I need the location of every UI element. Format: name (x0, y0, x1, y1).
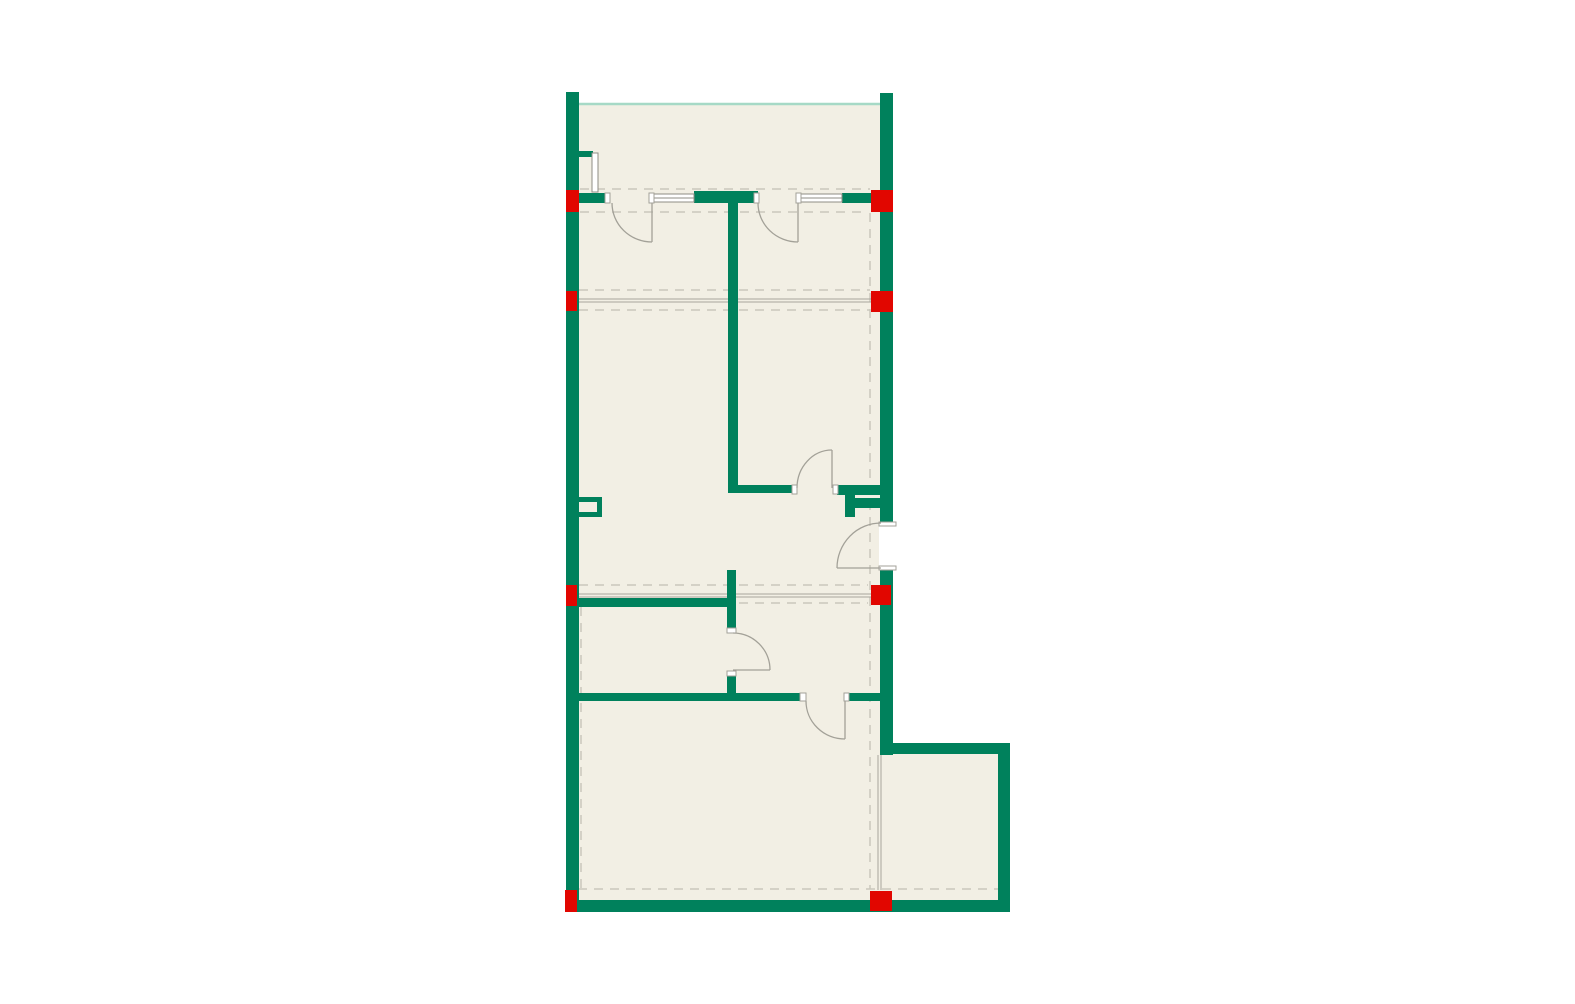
jamb-rightwall-bottom (879, 566, 896, 570)
column-beam1-left (566, 291, 577, 311)
wall-stub-lower (727, 676, 736, 695)
wall-annex-right (998, 743, 1010, 912)
column-top-left (566, 190, 579, 212)
wall-hall-bottom-left (576, 693, 806, 701)
jamb-midwall-right (833, 485, 838, 494)
jamb-stub-bottom (727, 671, 736, 676)
column-beam2-right (871, 585, 891, 605)
wall-shaft-top (837, 485, 880, 495)
jamb-midwall-left (792, 485, 797, 494)
wall-terrace-stub (579, 151, 593, 157)
niche-bottom (576, 512, 602, 517)
floor-plan-drawing (0, 0, 1575, 1004)
jamb-stub-top (727, 628, 736, 633)
wall-bottom (566, 900, 1010, 912)
column-bottom-left (565, 890, 577, 912)
wall-shaft-stem (845, 490, 855, 517)
opening-right-wall-door (879, 522, 896, 570)
jamb-door2-right (796, 193, 801, 203)
wall-annex-top (880, 743, 1010, 754)
column-beam1-right (871, 291, 893, 312)
jamb-hall-left (800, 693, 806, 701)
column-bottom-right (870, 891, 892, 911)
floor-plan-canvas (0, 0, 1575, 1004)
wall-top-lintel (694, 191, 758, 203)
jamb-rightwall-top (879, 522, 896, 526)
jamb-door1-left (605, 193, 610, 203)
jamb-door1-right (649, 193, 654, 203)
jamb-hall-right (844, 693, 849, 701)
terrace-partition-glass (592, 153, 598, 192)
wall-shaft-nub (855, 498, 880, 508)
wall-mid-horizontal (728, 485, 793, 493)
floor-annex (880, 754, 999, 900)
wall-bath-top (576, 598, 733, 607)
wall-stub-upper (727, 570, 736, 628)
jamb-door2-left (754, 193, 759, 203)
column-top-right (871, 190, 893, 212)
column-beam2-left (566, 585, 577, 606)
wall-core-vertical (728, 193, 738, 492)
